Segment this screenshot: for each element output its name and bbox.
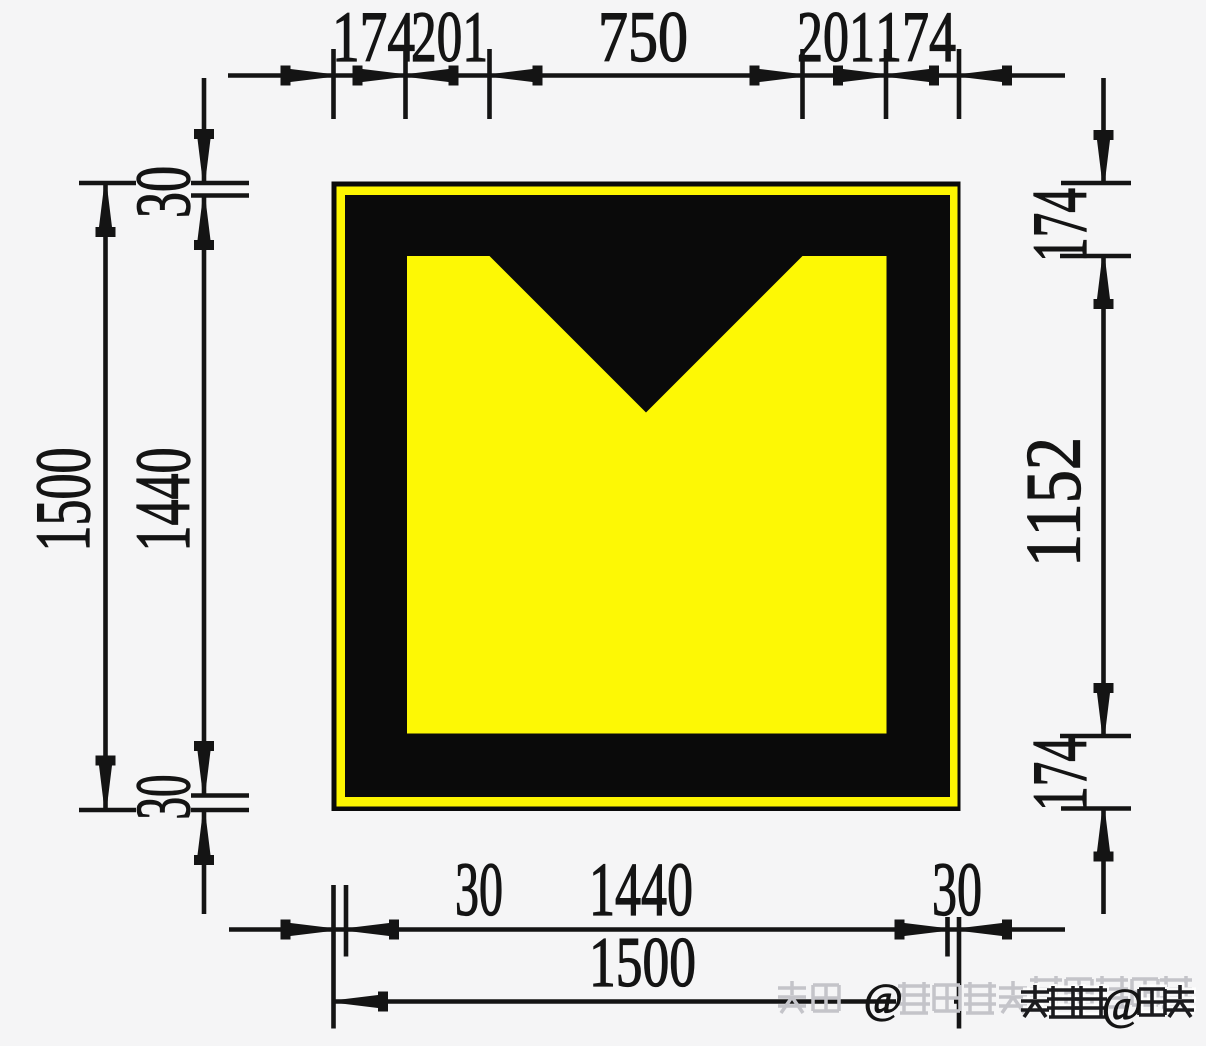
svg-text:201: 201 bbox=[797, 0, 875, 77]
svg-text:174: 174 bbox=[875, 0, 956, 77]
svg-text:@: @ bbox=[1102, 980, 1143, 1029]
svg-text:1500: 1500 bbox=[19, 448, 106, 552]
svg-text:174: 174 bbox=[332, 0, 415, 77]
svg-text:1440: 1440 bbox=[589, 848, 693, 932]
svg-text:30: 30 bbox=[119, 775, 206, 820]
svg-text:1440: 1440 bbox=[119, 448, 206, 552]
svg-text:201: 201 bbox=[411, 0, 488, 77]
svg-text:30: 30 bbox=[932, 848, 982, 932]
svg-text:30: 30 bbox=[455, 848, 503, 932]
svg-text:1152: 1152 bbox=[1010, 437, 1097, 567]
svg-text:174: 174 bbox=[1016, 188, 1103, 262]
svg-text:@: @ bbox=[864, 977, 903, 1023]
svg-text:1500: 1500 bbox=[589, 924, 696, 1002]
svg-text:30: 30 bbox=[119, 166, 206, 218]
svg-text:174: 174 bbox=[1016, 737, 1103, 811]
svg-text:750: 750 bbox=[598, 0, 688, 77]
